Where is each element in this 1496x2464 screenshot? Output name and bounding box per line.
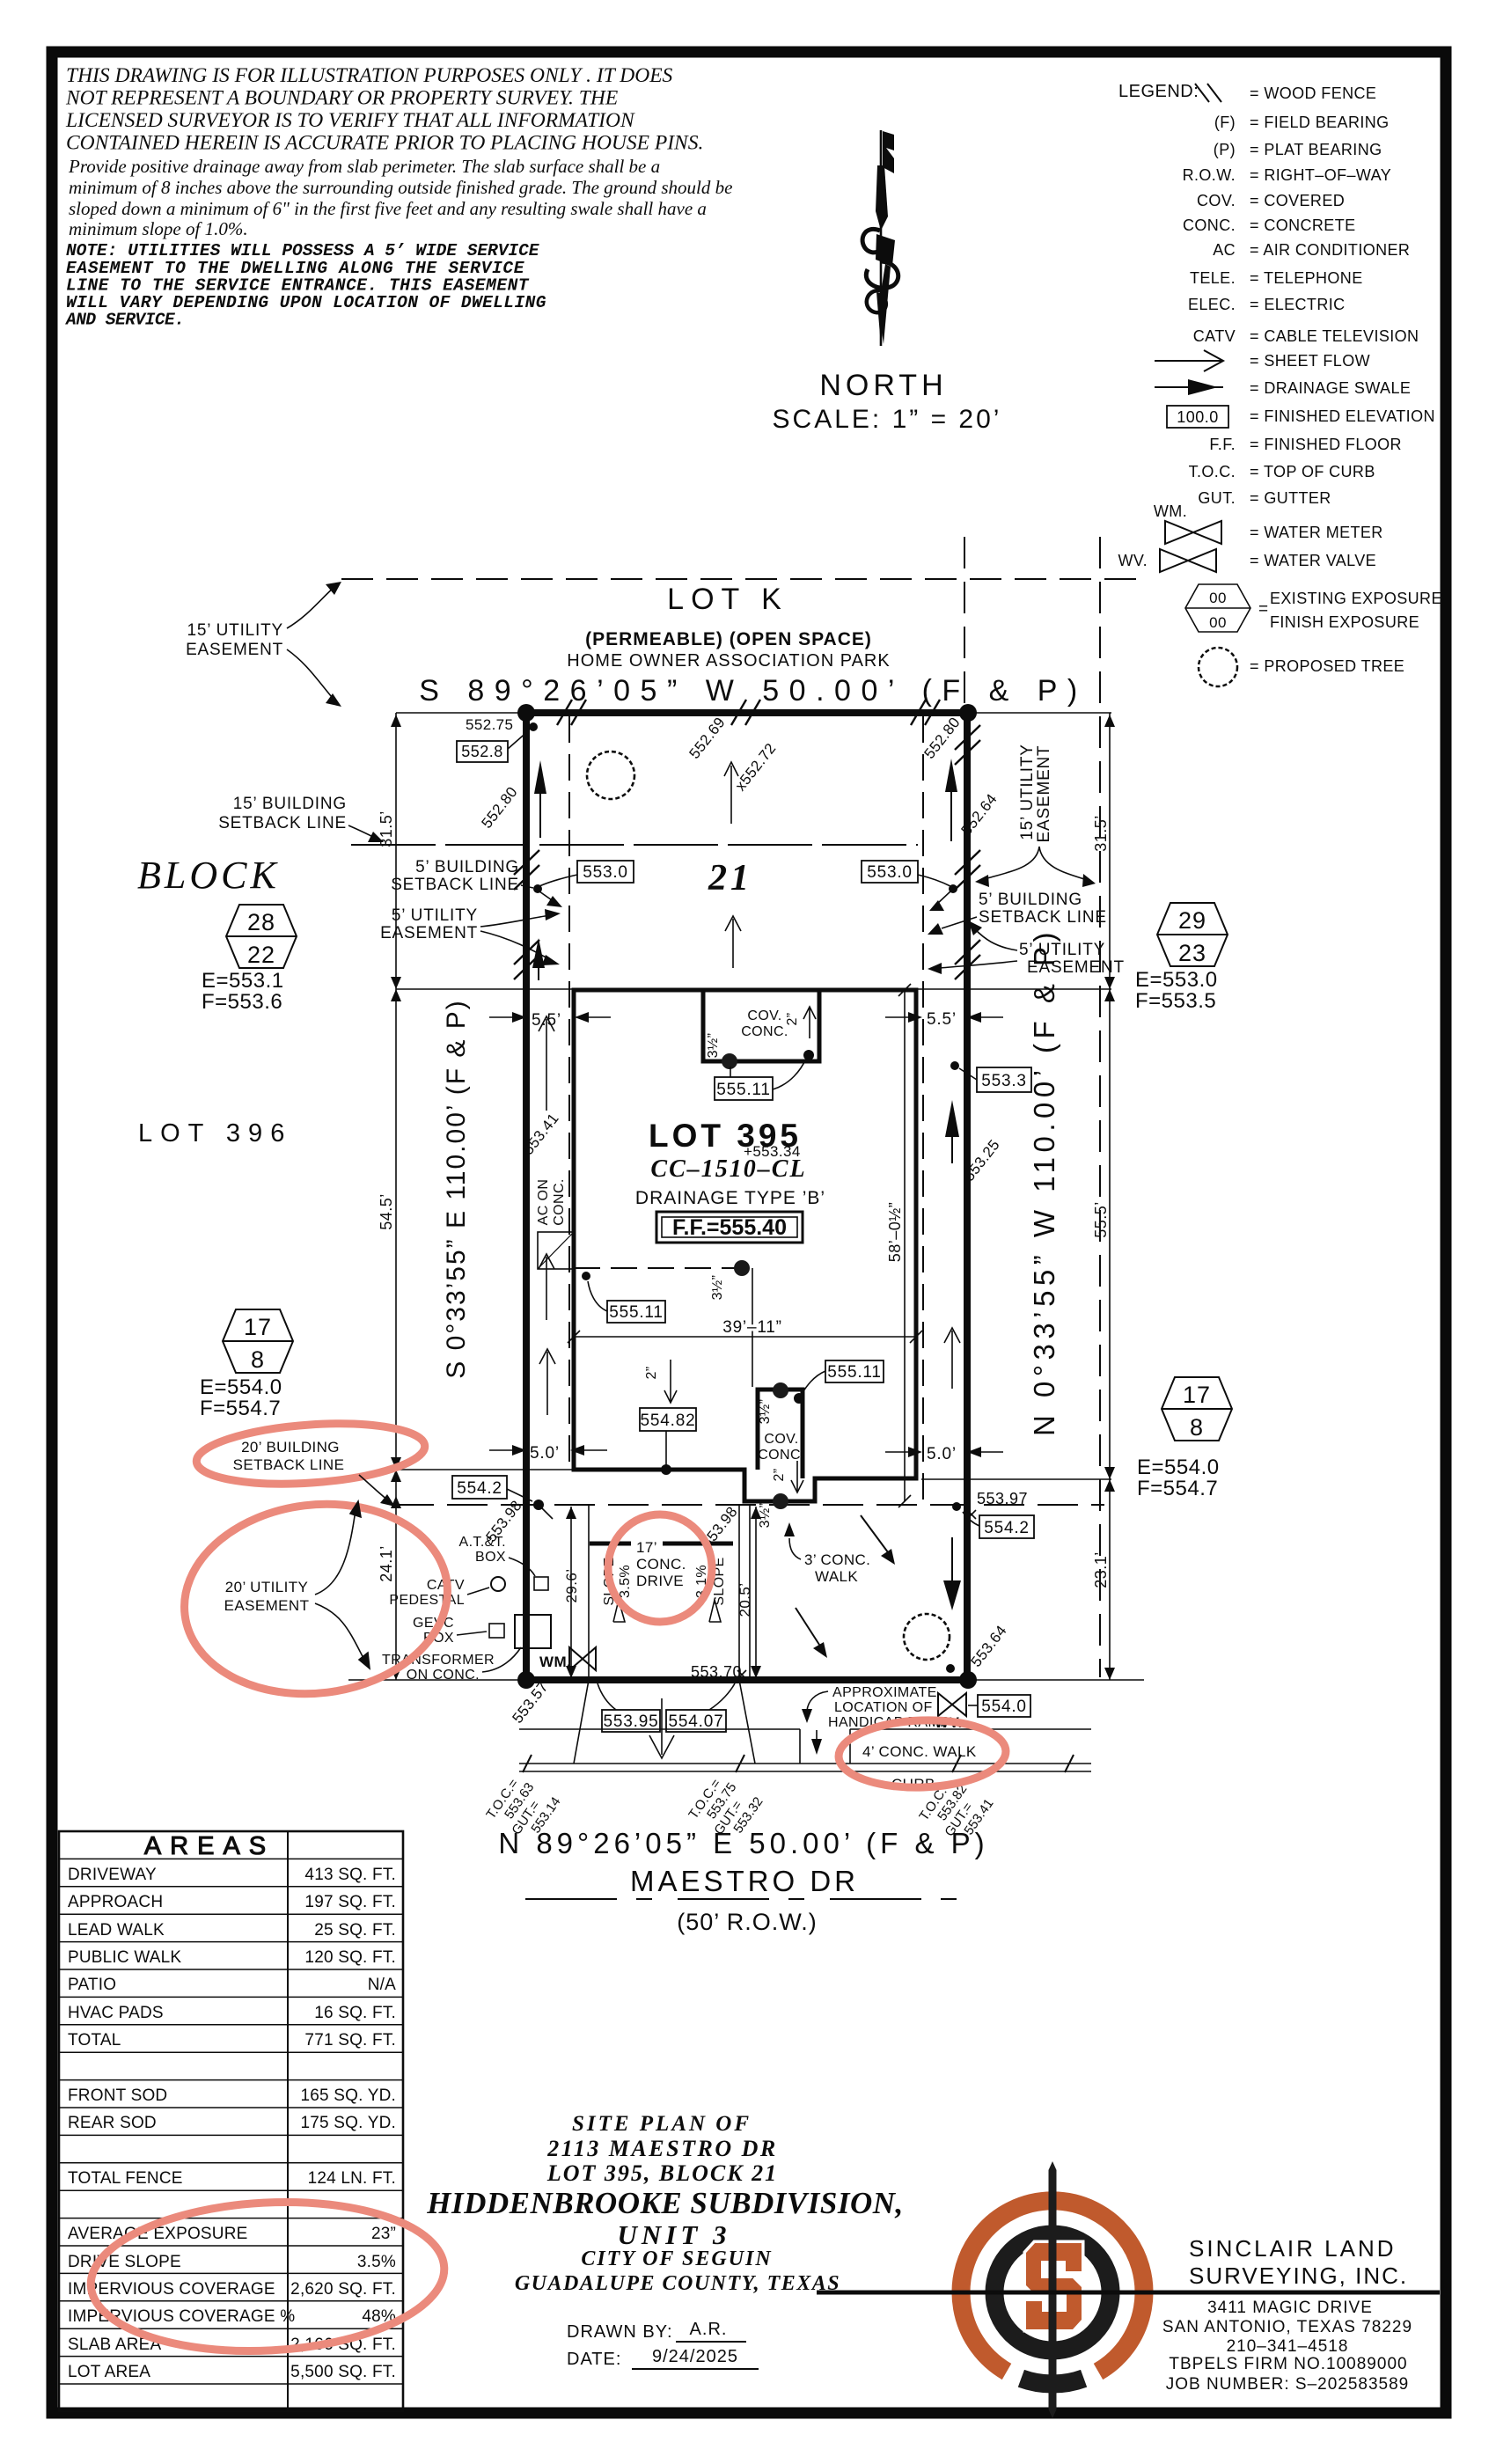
svg-text:A.R.: A.R. (690, 2320, 728, 2339)
svg-text:HOME OWNER ASSOCIATION PARK: HOME OWNER ASSOCIATION PARK (567, 651, 890, 671)
svg-text:= CABLE TELEVISION: = CABLE TELEVISION (1250, 327, 1419, 345)
svg-text:= PLAT BEARING: = PLAT BEARING (1250, 141, 1382, 158)
svg-text:(50’ R.O.W.): (50’ R.O.W.) (677, 1909, 818, 1935)
svg-text:3’ CONC.: 3’ CONC. (804, 1551, 870, 1568)
svg-text:552.75: 552.75 (466, 716, 513, 733)
svg-text:ELEC.: ELEC. (1188, 296, 1236, 313)
svg-text:9/24/2025: 9/24/2025 (652, 2347, 738, 2366)
svg-text:minimum slope of 1.0%.: minimum slope of 1.0%. (69, 218, 248, 239)
svg-text:553.0: 553.0 (867, 863, 913, 882)
svg-text:17’: 17’ (636, 1539, 657, 1556)
svg-text:= ELECTRIC: = ELECTRIC (1250, 296, 1346, 313)
svg-text:AREAS: AREAS (144, 1832, 275, 1860)
svg-text:SCALE: 1” = 20’: SCALE: 1” = 20’ (773, 405, 1002, 434)
svg-text:28: 28 (247, 909, 275, 935)
svg-text:SINCLAIR LAND: SINCLAIR LAND (1189, 2235, 1397, 2262)
svg-text:LOT 396: LOT 396 (138, 1119, 292, 1148)
svg-text:IMPERVIOUS COVERAGE: IMPERVIOUS COVERAGE (68, 2280, 275, 2299)
svg-text:124 LN. FT.: 124 LN. FT. (308, 2169, 396, 2188)
svg-text:15’ BUILDING: 15’ BUILDING (233, 795, 347, 813)
svg-text:CONC.: CONC. (552, 1178, 567, 1226)
svg-text:23: 23 (1178, 940, 1206, 966)
svg-text:F=553.6: F=553.6 (202, 990, 282, 1014)
svg-text:sloped down a minimum of 6" in: sloped down a minimum of 6" in the first… (69, 198, 707, 219)
svg-text:GUADALUPE COUNTY, TEXAS: GUADALUPE COUNTY, TEXAS (515, 2272, 840, 2295)
svg-text:2”: 2” (772, 1468, 787, 1481)
svg-text:= TELEPHONE: = TELEPHONE (1250, 269, 1363, 287)
svg-text:SURVEYING, INC.: SURVEYING, INC. (1189, 2262, 1408, 2289)
svg-text:552.8: 552.8 (461, 743, 503, 760)
svg-text:8: 8 (251, 1346, 265, 1373)
svg-text:5’ BUILDING: 5’ BUILDING (415, 858, 519, 876)
svg-text:F=553.5: F=553.5 (1135, 989, 1216, 1013)
svg-text:15’ UTILITY: 15’ UTILITY (187, 621, 283, 640)
svg-text:F=554.7: F=554.7 (200, 1397, 281, 1420)
svg-text:55.5’: 55.5’ (1092, 1201, 1110, 1238)
svg-text:N 0°33’55” W 110.00’ (F & P): N 0°33’55” W 110.00’ (F & P) (1028, 928, 1060, 1436)
svg-text:MAESTRO DR: MAESTRO DR (630, 1865, 859, 1897)
svg-text:Provide positive drainage away: Provide positive drainage away from slab… (68, 156, 660, 177)
svg-text:25 SQ. FT.: 25 SQ. FT. (314, 1921, 396, 1940)
svg-text:SETBACK LINE: SETBACK LINE (233, 1456, 345, 1473)
svg-text:TBPELS FIRM NO.10089000: TBPELS FIRM NO.10089000 (1169, 2355, 1407, 2373)
svg-text:TOTAL FENCE: TOTAL FENCE (68, 2169, 183, 2188)
svg-text:NOT REPRESENT A BOUNDARY OR PR: NOT REPRESENT A BOUNDARY OR PROPERTY SUR… (65, 87, 618, 110)
svg-text:CITY OF SEGUIN: CITY OF SEGUIN (581, 2248, 772, 2270)
svg-text:LICENSED SURVEYOR IS TO VERIFY: LICENSED SURVEYOR IS TO VERIFY THAT ALL … (65, 109, 635, 132)
svg-text:=: = (1258, 600, 1269, 619)
svg-text:WM.: WM. (539, 1654, 571, 1670)
svg-text:20’ BUILDING: 20’ BUILDING (241, 1439, 340, 1456)
svg-text:2,620 SQ. FT.: 2,620 SQ. FT. (290, 2280, 396, 2299)
svg-text:771 SQ. FT.: 771 SQ. FT. (304, 2031, 396, 2050)
svg-text:PUBLIC WALK: PUBLIC WALK (68, 1948, 181, 1967)
svg-text:EASEMENT: EASEMENT (1035, 745, 1053, 843)
svg-text:= FINISHED FLOOR: = FINISHED FLOOR (1250, 436, 1402, 453)
svg-text:5.0’: 5.0’ (927, 1445, 957, 1463)
svg-text:553.3: 553.3 (981, 1072, 1027, 1090)
svg-text:REAR SOD: REAR SOD (68, 2114, 157, 2132)
svg-text:5,500 SQ. FT.: 5,500 SQ. FT. (290, 2363, 396, 2381)
svg-text:2”: 2” (644, 1366, 659, 1379)
svg-text:5.5’: 5.5’ (532, 1011, 561, 1030)
svg-text:EASEMENT: EASEMENT (1027, 958, 1125, 977)
svg-text:24.1’: 24.1’ (378, 1545, 395, 1582)
svg-text:DRAWN BY:: DRAWN BY: (567, 2322, 673, 2342)
svg-text:CONTAINED HEREIN IS ACCURATE P: CONTAINED HEREIN IS ACCURATE PRIOR TO PL… (66, 132, 703, 155)
svg-text:21: 21 (708, 858, 752, 898)
svg-text:3½”: 3½” (710, 1275, 725, 1301)
svg-text:553.97: 553.97 (977, 1490, 1028, 1507)
svg-text:17: 17 (244, 1314, 272, 1340)
svg-text:EASEMENT: EASEMENT (380, 924, 478, 942)
svg-text:DRIVE: DRIVE (636, 1573, 684, 1589)
svg-text:CONC.: CONC. (636, 1556, 686, 1573)
svg-text:58’–0½”: 58’–0½” (886, 1202, 904, 1263)
svg-text:DRIVEWAY: DRIVEWAY (68, 1866, 157, 1884)
svg-text:= COVERED: = COVERED (1250, 192, 1345, 209)
svg-text:DATE:: DATE: (567, 2350, 621, 2369)
svg-text:minimum of 8 inches above the: minimum of 8 inches above the surroundin… (69, 177, 732, 198)
svg-text:= RIGHT–OF–WAY: = RIGHT–OF–WAY (1250, 166, 1391, 184)
svg-text:413 SQ. FT.: 413 SQ. FT. (304, 1866, 396, 1884)
svg-text:CC–1510–CL: CC–1510–CL (650, 1155, 806, 1183)
svg-text:120 SQ. FT.: 120 SQ. FT. (304, 1948, 396, 1967)
svg-text:WALK: WALK (815, 1568, 858, 1585)
svg-text:UNIT 3: UNIT 3 (617, 2219, 730, 2250)
svg-text:N/A: N/A (368, 1976, 396, 1994)
svg-text:F.F.: F.F. (1209, 436, 1236, 453)
svg-text:39’–11”: 39’–11” (722, 1318, 782, 1337)
svg-text:554.82: 554.82 (641, 1412, 696, 1430)
svg-text:APPROXIMATE: APPROXIMATE (832, 1685, 937, 1700)
svg-text:EXISTING EXPOSURE: EXISTING EXPOSURE (1270, 590, 1442, 607)
svg-text:SETBACK LINE: SETBACK LINE (218, 814, 347, 832)
svg-text:S 89°26’05” W 50.00’ (F & P): S 89°26’05” W 50.00’ (F & P) (419, 674, 1088, 708)
svg-text:555.11: 555.11 (716, 1081, 771, 1099)
svg-text:553.95: 553.95 (604, 1712, 659, 1731)
svg-text:LOT AREA: LOT AREA (68, 2363, 150, 2381)
svg-text:= FINISHED ELEVATION: = FINISHED ELEVATION (1250, 407, 1435, 425)
svg-text:CONC.: CONC. (1183, 216, 1236, 234)
svg-text:3.5%: 3.5% (357, 2253, 396, 2271)
svg-text:31.5’: 31.5’ (1092, 815, 1110, 852)
svg-text:555.11: 555.11 (827, 1363, 882, 1382)
svg-text:CONC.: CONC. (741, 1024, 788, 1039)
svg-text:E=553.1: E=553.1 (202, 969, 284, 993)
svg-text:EASEMENT: EASEMENT (186, 641, 283, 659)
svg-text:TOTAL: TOTAL (68, 2031, 121, 2050)
svg-text:8: 8 (1190, 1414, 1204, 1441)
svg-text:00: 00 (1209, 614, 1227, 631)
svg-text:17: 17 (1183, 1382, 1211, 1408)
svg-text:HIDDENBROOKE SUBDIVISION,: HIDDENBROOKE SUBDIVISION, (426, 2186, 904, 2220)
svg-text:5.5’: 5.5’ (927, 1010, 957, 1029)
svg-text:AC: AC (1213, 241, 1236, 259)
svg-text:= FIELD BEARING: = FIELD BEARING (1250, 114, 1390, 131)
svg-text:R.O.W.: R.O.W. (1183, 166, 1236, 184)
svg-text:2”: 2” (785, 1012, 800, 1025)
svg-text:5.0’: 5.0’ (530, 1444, 560, 1463)
svg-text:PEDESTAL: PEDESTAL (389, 1593, 465, 1608)
svg-text:NORTH: NORTH (819, 369, 947, 402)
svg-text:20.5’: 20.5’ (737, 1583, 753, 1617)
svg-text:29: 29 (1178, 907, 1206, 934)
svg-text:554.2: 554.2 (457, 1479, 502, 1498)
svg-text:S 0°33’55” E 110.00’ (F & P): S 0°33’55” E 110.00’ (F & P) (442, 999, 471, 1379)
svg-text:EASEMENT: EASEMENT (224, 1597, 310, 1614)
svg-text:SITE PLAN OF: SITE PLAN OF (572, 2112, 752, 2136)
svg-text:FINISH EXPOSURE: FINISH EXPOSURE (1270, 613, 1419, 631)
svg-text:GUT.: GUT. (1198, 489, 1236, 507)
svg-text:WV.: WV. (1118, 552, 1148, 569)
svg-text:E=554.0: E=554.0 (1137, 1456, 1220, 1479)
svg-text:5’ UTILITY: 5’ UTILITY (392, 906, 478, 925)
svg-text:= SHEET FLOW: = SHEET FLOW (1250, 352, 1370, 370)
svg-text:16 SQ. FT.: 16 SQ. FT. (314, 2004, 396, 2022)
svg-text:= WATER VALVE: = WATER VALVE (1250, 552, 1376, 569)
svg-text:CATV: CATV (1193, 327, 1236, 345)
svg-text:T.O.C.: T.O.C. (1189, 463, 1236, 480)
svg-text:= PROPOSED TREE: = PROPOSED TREE (1250, 657, 1404, 675)
svg-text:15’ UTILITY: 15’ UTILITY (1018, 744, 1037, 840)
svg-text:AND SERVICE.: AND SERVICE. (65, 311, 184, 330)
svg-text:20’ UTILITY: 20’ UTILITY (225, 1579, 308, 1595)
svg-text:= CONCRETE: = CONCRETE (1250, 216, 1356, 234)
svg-text:= TOP OF CURB: = TOP OF CURB (1250, 463, 1375, 480)
svg-text:553.0: 553.0 (583, 863, 628, 882)
svg-text:NOTE: UTILITIES WILL POSSESS A: NOTE: UTILITIES WILL POSSESS A 5’ WIDE S… (66, 241, 540, 260)
svg-text:DRIVE SLOPE: DRIVE SLOPE (68, 2253, 181, 2271)
svg-text:(P): (P) (1214, 141, 1236, 158)
svg-text:F=554.7: F=554.7 (1137, 1477, 1218, 1500)
svg-text:SETBACK LINE: SETBACK LINE (391, 876, 519, 894)
svg-text:LOCATION OF: LOCATION OF (834, 1700, 933, 1715)
svg-text:A.T.&T.: A.T.&T. (459, 1535, 506, 1550)
svg-text:FRONT SOD: FRONT SOD (68, 2086, 167, 2105)
svg-text:AC ON: AC ON (536, 1179, 551, 1226)
svg-text:3½”: 3½” (758, 1503, 773, 1529)
svg-text:HVAC PADS: HVAC PADS (68, 2004, 164, 2022)
svg-text:3½”: 3½” (706, 1033, 721, 1059)
svg-text:THIS DRAWING IS FOR ILLUSTRATI: THIS DRAWING IS FOR ILLUSTRATION PURPOSE… (66, 64, 673, 87)
svg-text:= GUTTER: = GUTTER (1250, 489, 1331, 507)
svg-text:ON CONC.: ON CONC. (407, 1668, 480, 1683)
svg-text:23.1’: 23.1’ (1092, 1551, 1110, 1588)
svg-text:54.5’: 54.5’ (378, 1193, 395, 1230)
svg-text:5’ BUILDING: 5’ BUILDING (979, 891, 1082, 909)
svg-text:CONC.: CONC. (758, 1448, 805, 1463)
svg-text:F.F.=555.40: F.F.=555.40 (672, 1215, 787, 1240)
svg-text:554.2: 554.2 (984, 1519, 1030, 1537)
svg-text:29.6’: 29.6’ (563, 1569, 580, 1603)
svg-text:E=553.0: E=553.0 (1135, 968, 1218, 992)
svg-text:LEAD WALK: LEAD WALK (68, 1921, 165, 1940)
svg-text:COV.: COV. (764, 1432, 798, 1447)
svg-text:22: 22 (247, 942, 275, 968)
svg-text:COV.: COV. (747, 1008, 781, 1023)
svg-text:00: 00 (1209, 590, 1227, 606)
svg-text:197 SQ. FT.: 197 SQ. FT. (304, 1893, 396, 1911)
svg-text:= WATER METER: = WATER METER (1250, 524, 1383, 541)
svg-text:= WOOD FENCE: = WOOD FENCE (1250, 84, 1376, 102)
svg-text:555.11: 555.11 (609, 1303, 664, 1322)
svg-text:LEGEND:: LEGEND: (1118, 82, 1199, 101)
svg-text:(PERMEABLE) (OPEN SPACE): (PERMEABLE) (OPEN SPACE) (585, 629, 872, 649)
svg-text:100.0: 100.0 (1177, 408, 1219, 426)
svg-text:DRAINAGE TYPE ’B’: DRAINAGE TYPE ’B’ (635, 1188, 825, 1208)
svg-text:SETBACK LINE: SETBACK LINE (979, 908, 1107, 927)
svg-text:3.5%: 3.5% (618, 1565, 633, 1598)
svg-text:COV.: COV. (1197, 192, 1236, 209)
svg-text:554.0: 554.0 (981, 1698, 1027, 1716)
svg-text:5’ UTILITY: 5’ UTILITY (1019, 941, 1105, 959)
svg-text:BOX: BOX (475, 1550, 506, 1565)
svg-text:WM.: WM. (1154, 502, 1187, 520)
svg-text:3½”: 3½” (758, 1399, 773, 1425)
svg-text:APPROACH: APPROACH (68, 1893, 163, 1911)
svg-text:4’ CONC. WALK: 4’ CONC. WALK (862, 1743, 977, 1760)
svg-text:LOT 395, BLOCK 21: LOT 395, BLOCK 21 (546, 2160, 778, 2186)
svg-text:(F): (F) (1214, 114, 1236, 131)
svg-text:2113 MAESTRO DR: 2113 MAESTRO DR (546, 2136, 777, 2161)
svg-text:BLOCK: BLOCK (137, 854, 280, 897)
svg-text:3411 MAGIC DRIVE: 3411 MAGIC DRIVE (1207, 2299, 1373, 2317)
svg-text:JOB NUMBER: S–202583589: JOB NUMBER: S–202583589 (1166, 2375, 1409, 2394)
svg-text:553.70: 553.70 (691, 1663, 742, 1681)
svg-text:554.07: 554.07 (669, 1712, 724, 1731)
svg-text:210–341–4518: 210–341–4518 (1227, 2337, 1349, 2356)
svg-text:175 SQ. YD.: 175 SQ. YD. (300, 2114, 396, 2132)
svg-text:23”: 23” (371, 2225, 396, 2243)
svg-text:165 SQ. YD.: 165 SQ. YD. (300, 2086, 396, 2105)
svg-text:E=554.0: E=554.0 (200, 1375, 282, 1399)
svg-text:SAN ANTONIO, TEXAS 78229: SAN ANTONIO, TEXAS 78229 (1162, 2318, 1412, 2336)
svg-text:LOT K: LOT K (667, 583, 788, 616)
svg-text:N 89°26’05” E 50.00’ (F & P): N 89°26’05” E 50.00’ (F & P) (498, 1827, 988, 1859)
svg-text:PATIO: PATIO (68, 1976, 116, 1994)
svg-text:= AIR CONDITIONER: = AIR CONDITIONER (1250, 241, 1410, 259)
svg-text:= DRAINAGE SWALE: = DRAINAGE SWALE (1250, 379, 1411, 397)
svg-text:TELE.: TELE. (1190, 269, 1236, 287)
